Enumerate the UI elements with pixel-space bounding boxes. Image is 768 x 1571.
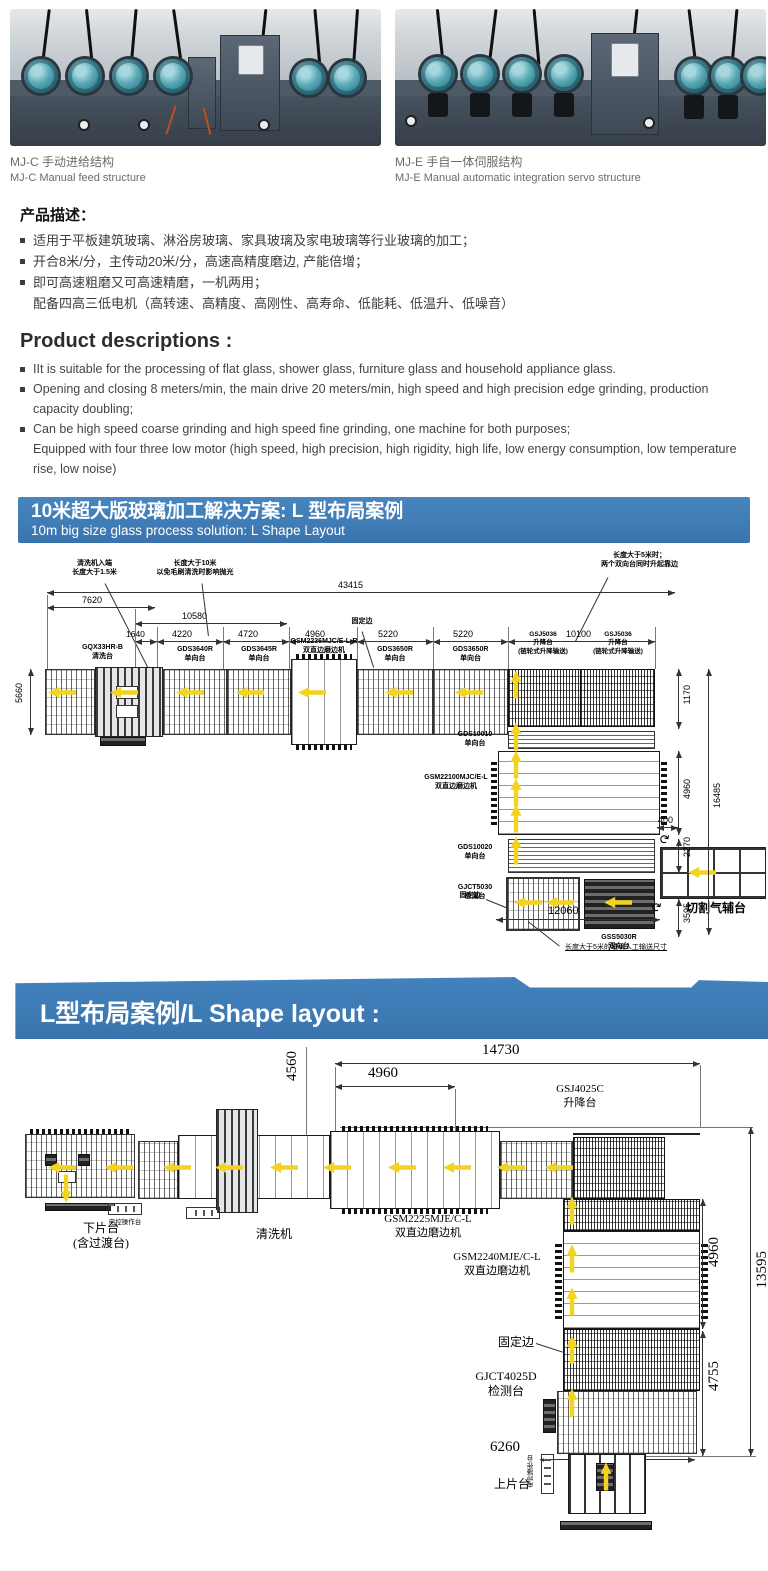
annotation: 长度大于5米的玻璃人工输送尺寸 xyxy=(556,943,676,952)
lift-conveyor-block xyxy=(573,1137,665,1199)
washer-foot xyxy=(100,737,146,746)
dim-line xyxy=(678,751,679,835)
motor-icon xyxy=(677,59,711,93)
banner-title-en: 10m big size glass process solution: L S… xyxy=(31,523,750,539)
motor-row xyxy=(296,745,352,750)
bullet-zh: 适用于平板建筑玻璃、淋浴房玻璃、家具玻璃及家电玻璃等行业玻璃的加工； xyxy=(20,230,754,251)
console-label: 电控操作台 xyxy=(528,1455,536,1488)
machine-label: GDS3650R 单向台 xyxy=(357,645,433,663)
machine-label: GSM22100MJC/E-L 双直边磨边机 xyxy=(408,773,504,791)
dim-line xyxy=(678,839,679,873)
dim-line xyxy=(657,827,678,828)
bullet-en: IIt is suitable for the processing of fl… xyxy=(20,359,754,379)
edging-machine-block xyxy=(498,751,660,835)
lift-conveyor-block xyxy=(563,1199,700,1231)
motor-icon xyxy=(112,59,146,93)
dim-label: 7620 xyxy=(82,595,102,605)
dim-line xyxy=(30,669,31,735)
photo-caption-zh: MJ-E 手自一体伺服结构 xyxy=(395,153,766,170)
machine-label: GDS3650R 单向台 xyxy=(433,645,508,663)
motor-icon xyxy=(463,57,497,91)
dim-label: 12060 xyxy=(548,905,579,917)
transfer-bar xyxy=(45,1203,115,1211)
gear-pump-icon xyxy=(554,93,574,117)
conveyor-block xyxy=(433,669,508,735)
dim-label: 16485 xyxy=(712,783,722,808)
annotation: 清洗机入端 长度大于1.5米 xyxy=(52,559,137,578)
cable-icon xyxy=(487,9,497,67)
motor-icon xyxy=(292,61,326,95)
edging-machine-block xyxy=(563,1231,700,1329)
bullet-en: Can be high speed coarse grinding and hi… xyxy=(20,419,754,439)
dim-label: 4960 xyxy=(368,1065,398,1082)
machine-label: 清洗机 xyxy=(246,1227,302,1242)
gear-pump-icon xyxy=(718,95,738,119)
extension-line xyxy=(47,595,48,669)
gauge-icon xyxy=(140,121,148,129)
bullet-en: Opening and closing 8 meters/min, the ma… xyxy=(20,379,754,419)
photo-col-right: MJ-E 手自一体伺服结构 MJ-E Manual automatic inte… xyxy=(395,9,766,184)
dim-label: 10580 xyxy=(182,611,207,621)
dim-label: 5220 xyxy=(378,629,398,639)
conveyor-block xyxy=(508,839,655,873)
dim-line xyxy=(750,1127,751,1456)
dim-label: 4560 xyxy=(284,1051,301,1081)
machine-label: GSJ4025C 升降台 xyxy=(528,1083,632,1111)
gear-pump-icon xyxy=(428,93,448,117)
layout-diagram-10m: 清洗机入端 长度大于1.5米 长度大于10米 以免毛刷清洗时影响抛光 长度大于5… xyxy=(0,547,768,957)
dim-line xyxy=(135,641,157,642)
motor-column xyxy=(555,1241,562,1319)
section-title-zh: 产品描述： xyxy=(20,204,754,225)
dim-label: 6260 xyxy=(490,1439,520,1456)
dim-label: 4720 xyxy=(238,629,258,639)
cable-icon xyxy=(533,9,541,65)
dim-label: 14730 xyxy=(482,1042,520,1059)
dim-line xyxy=(433,641,508,642)
dim-line xyxy=(157,641,223,642)
machine-photo-mjc xyxy=(10,9,381,146)
banner-title-zh: 10米超大版玻璃加工解决方案: L 型布局案例 xyxy=(31,500,750,523)
conveyor-block xyxy=(508,731,655,749)
dim-line xyxy=(708,669,709,935)
fixed-edge-grid xyxy=(563,1329,700,1391)
cable-icon xyxy=(731,9,739,65)
dim-line xyxy=(678,899,679,937)
motor-column xyxy=(491,761,497,825)
detector-housing xyxy=(543,1399,556,1433)
dim-label: 4755 xyxy=(706,1361,723,1391)
motor-icon xyxy=(505,57,539,91)
control-console xyxy=(108,1203,142,1215)
control-console xyxy=(541,1454,554,1494)
divider-line xyxy=(580,669,581,727)
extension-line xyxy=(700,1065,701,1127)
machine-label: GQX33HR-B 清洗台 xyxy=(55,643,150,661)
machine-label: GSJ5036 升降台 (链轮式升降输送) xyxy=(505,631,581,656)
machine-label: GSJ5036 升降台 (链轮式升降输送) xyxy=(580,631,656,656)
dim-label: 5220 xyxy=(453,629,473,639)
machine-label: GJCT4025D 检测台 xyxy=(466,1369,546,1399)
gauge-icon xyxy=(407,117,415,125)
dim-label: 3595 xyxy=(682,903,692,923)
motor-row xyxy=(30,1129,130,1134)
cable-icon xyxy=(172,9,183,65)
dim-label: 4960 xyxy=(706,1237,723,1267)
banner-title: L型布局案例/L Shape layout : xyxy=(40,994,380,1030)
motor-icon xyxy=(547,57,581,91)
edging-machine-block xyxy=(330,1131,500,1209)
gear-pump-icon xyxy=(512,93,532,117)
washer-block xyxy=(95,667,163,737)
motor-icon xyxy=(330,61,364,95)
conveyor-block xyxy=(163,669,227,735)
machine-base xyxy=(395,96,766,146)
dim-label: 400 xyxy=(658,815,673,825)
inspection-table-block xyxy=(557,1391,697,1454)
section-title-en: Product descriptions : xyxy=(20,330,754,353)
dim-label: 13595 xyxy=(754,1251,768,1289)
loader-bar xyxy=(560,1521,652,1530)
cable-icon xyxy=(313,9,321,69)
dim-line xyxy=(47,592,675,593)
washer-window xyxy=(116,705,138,718)
conveyor-block xyxy=(357,669,433,735)
annotation: 长度大于5米时； 两个双向台同时升起靠边 xyxy=(572,551,707,570)
layout-diagram-lshape: 14730 4960 4560 GSJ4025C 升降台 下片台 (含过渡台) … xyxy=(0,1039,768,1571)
dim-label: 4960 xyxy=(682,779,692,799)
fixed-edge-label: 固定边 xyxy=(494,1335,538,1350)
photo-caption-zh: MJ-C 手动进给结构 xyxy=(10,153,381,170)
machine-photo-mje xyxy=(395,9,766,146)
cable-icon xyxy=(352,9,359,67)
gauge-icon xyxy=(260,121,268,129)
motor-icon xyxy=(24,59,58,93)
control-console xyxy=(186,1207,220,1219)
leader-line xyxy=(536,1343,563,1353)
cabinet xyxy=(188,57,216,129)
conveyor-block xyxy=(500,1141,573,1199)
photo-caption-en: MJ-C Manual feed structure xyxy=(10,172,381,184)
motor-icon xyxy=(711,59,745,93)
bullet-zh-continuation: 配备四高三低电机（高转速、高精度、高刚性、高寿命、低能耗、低温升、低噪音） xyxy=(20,293,754,314)
extension-line xyxy=(335,1067,336,1141)
motor-icon xyxy=(156,59,190,93)
gauge-icon xyxy=(645,119,653,127)
dim-line xyxy=(335,1063,700,1064)
washer-tower xyxy=(216,1109,258,1213)
hanger-rail xyxy=(573,1133,700,1135)
edging-machine-block xyxy=(291,659,357,745)
bullet-zh: 即可高速粗磨又可高速精磨，一机两用； xyxy=(20,272,754,293)
conveyor-block xyxy=(227,669,291,735)
motor-icon xyxy=(68,59,102,93)
motor-row xyxy=(342,1126,488,1131)
dim-line xyxy=(702,1199,703,1329)
dim-label: 2270 xyxy=(682,837,692,857)
machine-label: 切割气辅台 xyxy=(686,901,766,917)
sprayer-head xyxy=(611,43,639,77)
gauge-icon xyxy=(80,121,88,129)
layout-banner: L型布局案例/L Shape layout : xyxy=(0,977,768,1039)
conveyor-outfeed xyxy=(45,669,95,735)
dim-label: 5660 xyxy=(14,683,24,703)
dim-line xyxy=(702,1331,703,1456)
description-en: Product descriptions : IIt is suitable f… xyxy=(20,330,768,479)
dim-line xyxy=(335,1086,455,1087)
annotation: 长度大于10米 以免毛刷清洗时影响抛光 xyxy=(140,559,250,578)
photo-row: MJ-C 手动进给结构 MJ-C Manual feed structure xyxy=(0,0,768,184)
photo-col-left: MJ-C 手动进给结构 MJ-C Manual feed structure xyxy=(10,9,381,184)
fixed-edge-label: 固定边 xyxy=(346,617,378,626)
table-detail xyxy=(78,1154,90,1166)
motor-icon xyxy=(421,57,455,91)
dim-line xyxy=(135,623,287,624)
rotate-arrow-icon: ↻ xyxy=(655,832,673,846)
machine-label: GDS10020 单向台 xyxy=(446,843,504,861)
lift-table-block xyxy=(508,669,655,727)
extension-line xyxy=(646,1456,756,1457)
console-label: 电控操作台 xyxy=(100,1219,150,1227)
motor-row xyxy=(296,654,352,659)
dim-line xyxy=(496,919,660,920)
dim-label: 4220 xyxy=(172,629,192,639)
dim-label: 1170 xyxy=(682,685,692,704)
extension-line xyxy=(306,1047,307,1141)
photo-caption-en: MJ-E Manual automatic integration servo … xyxy=(395,172,766,184)
description-zh: 产品描述： 适用于平板建筑玻璃、淋浴房玻璃、家具玻璃及家电玻璃等行业玻璃的加工；… xyxy=(20,204,768,314)
machine-label: GDS3640R 单向台 xyxy=(163,645,227,663)
sprayer-head xyxy=(238,45,264,75)
solution-banner: 10米超大版玻璃加工解决方案: L 型布局案例 10m big size gla… xyxy=(18,497,750,543)
bullet-zh: 开合8米/分，主传动20米/分，高速高精度磨边, 产能倍增； xyxy=(20,251,754,272)
dim-line xyxy=(47,607,155,608)
machine-label: GSM2225MJE/C-L 双直边磨边机 xyxy=(378,1213,478,1241)
machine-label: GSM2240MJE/C-L 双直边磨边机 xyxy=(442,1251,552,1279)
dim-line xyxy=(678,669,679,729)
fixed-edge-label: 固定边 xyxy=(454,891,486,900)
machine-label: GDS10010 单向台 xyxy=(446,730,504,748)
bullet-en-continuation: Equipped with four three low motor (high… xyxy=(20,439,754,479)
gear-pump-icon xyxy=(470,93,490,117)
extension-line xyxy=(157,627,158,669)
gear-pump-icon xyxy=(684,95,704,119)
dim-label: 43415 xyxy=(338,580,363,590)
